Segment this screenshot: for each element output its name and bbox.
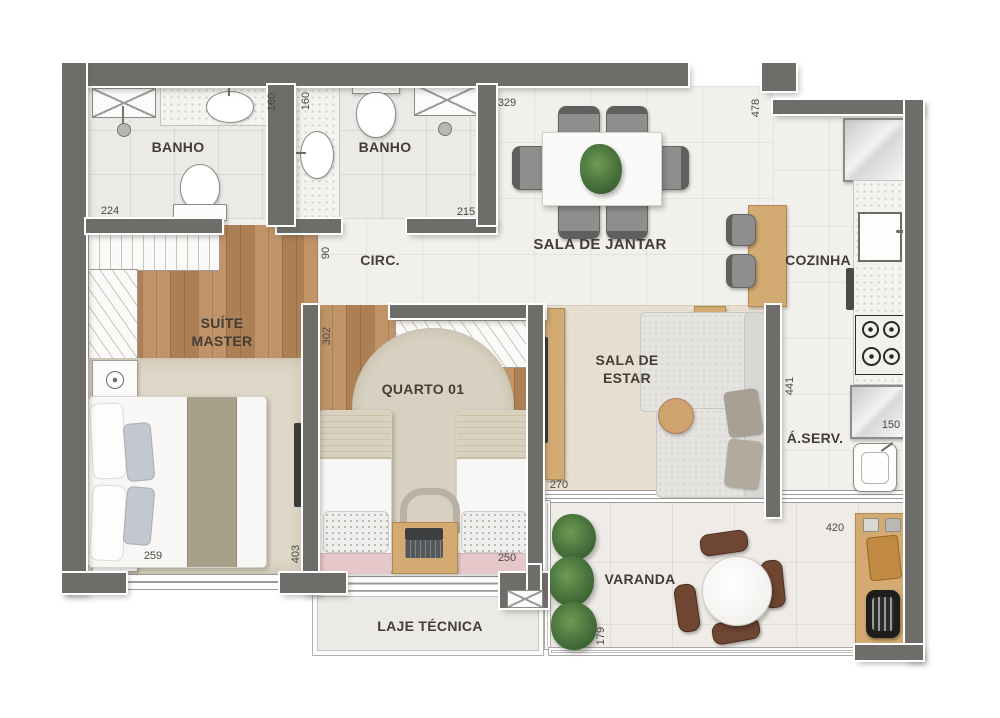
- varanda-counter: [855, 513, 907, 649]
- label-sala-jantar: SALA DE JANTAR: [505, 236, 695, 253]
- banho2-shower-box-icon: [414, 84, 480, 116]
- label-banho2: BANHO: [335, 139, 435, 155]
- banho1-shower-head-icon: [117, 123, 131, 137]
- burner-icon: [862, 321, 879, 338]
- bar-stool: [726, 254, 756, 288]
- dim-jantar-width: 329: [487, 96, 527, 110]
- bar-stool: [726, 214, 756, 246]
- suite-tv-icon: [294, 423, 302, 507]
- blanket: [319, 553, 391, 574]
- tv-cabinet: [545, 308, 565, 480]
- wall-top: [62, 63, 688, 86]
- pillow: [123, 422, 156, 482]
- pillow: [123, 486, 156, 546]
- laptop-screen-icon: [405, 528, 443, 540]
- grill-icon: [866, 590, 900, 638]
- tank-faucet: [881, 442, 894, 452]
- dim-quarto-width: 250: [487, 551, 527, 565]
- pillow: [89, 484, 127, 562]
- quarto-bed: [318, 410, 392, 574]
- sofa-cushion: [724, 438, 763, 489]
- pillow: [323, 511, 389, 553]
- stove-icon: [855, 315, 907, 375]
- banho2-sink-icon: [300, 131, 334, 179]
- wall-suite-quarto: [303, 305, 318, 593]
- cutting-board-icon: [866, 534, 902, 581]
- suite-closet: [88, 227, 220, 271]
- nightstand: [92, 360, 138, 400]
- banho2-shower-head-icon: [438, 122, 452, 136]
- label-estar-line2: ESTAR: [567, 369, 687, 387]
- dim-cozinha-depth: 441: [783, 366, 797, 406]
- vent-box-icon: [507, 590, 543, 608]
- suite-window: [126, 574, 282, 590]
- pillow: [461, 511, 527, 553]
- cup-icon: [863, 518, 879, 532]
- label-circ: CIRC.: [330, 252, 430, 268]
- wall-quarto-top: [390, 305, 545, 318]
- banho1-shower-arm: [122, 106, 124, 124]
- floor-plan: BANHO BANHO CIRC. SALA DE JANTAR COZINHA…: [0, 0, 1000, 718]
- dim-varanda-width: 420: [815, 521, 855, 535]
- grill-grate: [872, 597, 894, 631]
- suite-bed: [88, 396, 267, 568]
- wall-quarto-right: [528, 305, 543, 575]
- label-aserv: Á.SERV.: [763, 430, 867, 446]
- label-sala-estar: SALA DE ESTAR: [567, 351, 687, 387]
- wall-banho1-bottom: [86, 219, 222, 233]
- label-estar-line1: SALA DE: [567, 351, 687, 369]
- cup-icon: [885, 518, 901, 532]
- label-suite-master: SUÍTE MASTER: [162, 314, 282, 350]
- banho1-sink-icon: [206, 91, 254, 123]
- wall-varanda-bottom: [855, 645, 923, 660]
- banho1-cabinet-icon: [92, 88, 156, 118]
- dim-circ-width: 90: [319, 233, 333, 273]
- table-plant-icon: [580, 144, 622, 194]
- laundry-tank-icon: [853, 443, 897, 492]
- dim-banho1-depth: 160: [265, 82, 279, 122]
- laptop-keyboard-icon: [405, 540, 443, 558]
- label-varanda: VARANDA: [578, 571, 702, 587]
- burner-icon: [883, 348, 900, 365]
- bed-runner: [187, 397, 237, 567]
- suite-closet: [88, 269, 138, 359]
- label-banho1: BANHO: [128, 139, 228, 155]
- label-suite-line2: MASTER: [162, 332, 282, 350]
- wall-entry-pillar: [762, 63, 796, 91]
- quarto-desk: [392, 522, 458, 574]
- dim-social-depth: 478: [749, 88, 763, 128]
- banho2-faucet: [292, 152, 306, 154]
- banho2-toilet-bowl-icon: [356, 92, 396, 138]
- quarto-window: [346, 576, 502, 591]
- plant-icon: [552, 514, 596, 560]
- dim-banho2-depth: 160: [299, 81, 313, 121]
- label-suite-line1: SUÍTE: [162, 314, 282, 332]
- quarto-bed: [456, 410, 530, 574]
- dim-quarto-depth: 302: [320, 316, 334, 356]
- suite-door-threshold: [303, 232, 318, 305]
- wall-varanda-left-pillar: [528, 565, 540, 593]
- label-quarto01: QUARTO 01: [353, 381, 493, 397]
- wall-kitchen-top: [773, 100, 923, 114]
- wall-suite-bottom-mid: [280, 573, 346, 593]
- tank-basin: [861, 452, 889, 484]
- dim-varanda-depth: 179: [594, 616, 608, 656]
- wall-right: [905, 100, 923, 660]
- wall-suite-bottom-left: [62, 573, 126, 593]
- dim-banho1-width: 224: [90, 204, 130, 218]
- varanda-table-icon: [702, 556, 772, 626]
- pillow: [89, 402, 127, 480]
- label-cozinha: COZINHA: [768, 252, 868, 268]
- burner-icon: [862, 347, 881, 366]
- dim-banho2-width: 215: [446, 205, 486, 219]
- coffee-table-icon: [658, 398, 694, 434]
- dim-suite-width: 259: [133, 549, 173, 563]
- oven-towel-icon: [846, 268, 854, 310]
- dim-estar-width: 270: [539, 478, 579, 492]
- wall-estar-cozinha: [766, 305, 780, 517]
- lamp-icon: [106, 371, 124, 389]
- dim-suite-depth: 403: [289, 534, 303, 574]
- plant-icon: [551, 602, 597, 650]
- label-laje-tecnica: LAJE TÉCNICA: [338, 618, 522, 634]
- dim-aserv-width: 150: [871, 418, 911, 432]
- burner-icon: [883, 321, 900, 338]
- duvet: [457, 411, 529, 459]
- sofa-cushion: [723, 388, 763, 438]
- fridge-icon: [843, 118, 907, 182]
- wall-left: [62, 63, 86, 593]
- duvet: [319, 411, 391, 459]
